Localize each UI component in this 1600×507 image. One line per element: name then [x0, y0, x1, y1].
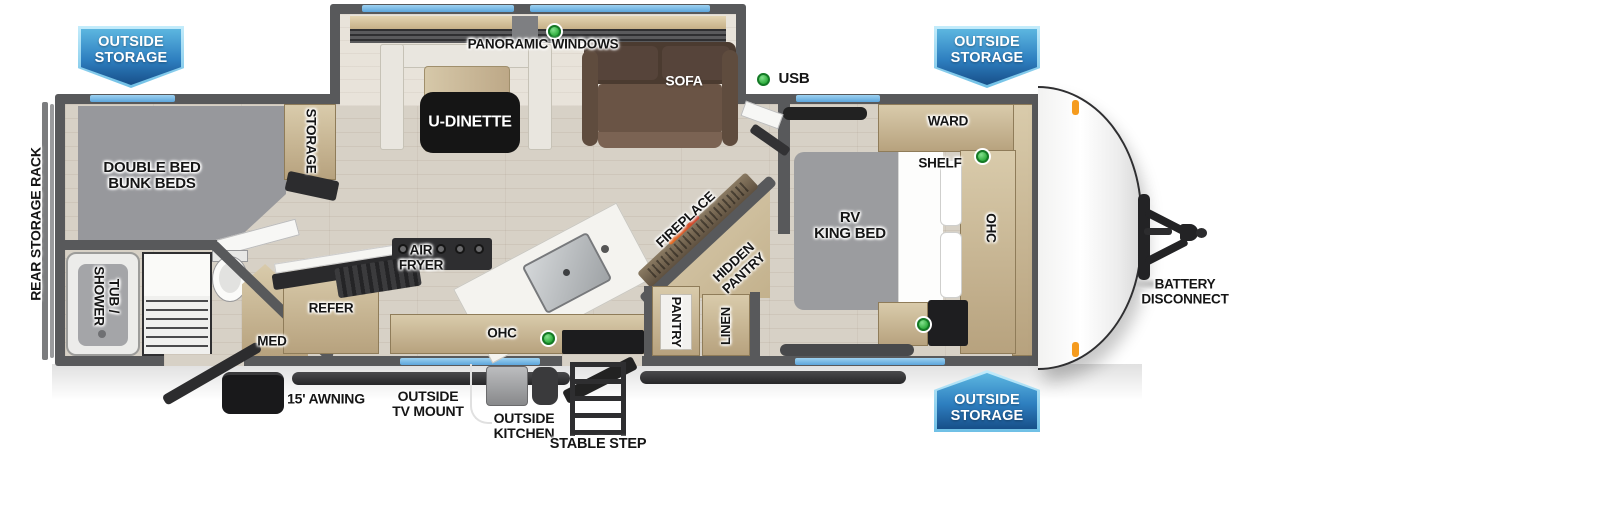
- awning-bar-right: [640, 371, 906, 384]
- bedroom-bench-bar: [780, 344, 914, 356]
- outside-storage-badge-bottom-right: OUTSIDE STORAGE: [934, 370, 1040, 432]
- air-fryer-label: AIR FRYER: [399, 243, 443, 272]
- med-label: MED: [257, 335, 286, 350]
- burner-4: [455, 244, 465, 254]
- badge-fill: OUTSIDE STORAGE: [937, 29, 1037, 85]
- dinette-bench-left: [380, 44, 404, 150]
- ward-label: WARD: [928, 115, 968, 130]
- storage-label: STORAGE: [303, 108, 318, 173]
- outside-kitchen-tank: [532, 367, 558, 405]
- pantry-wall-stub: [644, 286, 652, 356]
- faucet: [601, 245, 609, 253]
- bedroom-window-bottom: [795, 358, 945, 365]
- linen-right-wall: [750, 292, 760, 356]
- outside-tv-mount-label: OUTSIDE TV MOUNT: [392, 389, 464, 419]
- tub-drain: [98, 330, 106, 338]
- badge-label: OUTSIDE STORAGE: [951, 34, 1024, 80]
- tub-shower-label: TUB / SHOWER: [91, 266, 120, 326]
- usb-legend-label: USB: [778, 71, 809, 87]
- marker-light-bottom: [1072, 342, 1079, 357]
- usb-dot-kitchen: [542, 332, 555, 345]
- hitch-crossbar: [1138, 194, 1150, 280]
- bedroom-dark-cabinet: [928, 300, 968, 346]
- king-bed-sheet: [898, 152, 943, 310]
- bunk-bath-wall: [65, 240, 217, 250]
- ohc-bedroom-label: OHC: [983, 213, 998, 242]
- badge-label: OUTSIDE STORAGE: [951, 378, 1024, 424]
- outside-storage-badge-top-left: OUTSIDE STORAGE: [78, 26, 184, 88]
- rv-floorplan: OUTSIDE STORAGE OUTSIDE STORAGE OUTSIDE …: [0, 0, 1600, 507]
- sofa-front: [598, 132, 722, 148]
- slide-window-left: [362, 5, 514, 12]
- front-cap: [1038, 86, 1142, 370]
- outside-storage-badge-top-right: OUTSIDE STORAGE: [934, 26, 1040, 88]
- awning-bar-left: [292, 372, 570, 385]
- linen-label: LINEN: [719, 307, 733, 345]
- rear-rack-bar-inner: [50, 104, 54, 358]
- badge-fill: OUTSIDE STORAGE: [937, 373, 1037, 429]
- pillow-bottom: [940, 232, 962, 298]
- u-dinette-label: U-DINETTE: [428, 113, 512, 130]
- usb-dot-shelf: [976, 150, 989, 163]
- bedroom-window-top: [796, 95, 880, 102]
- hitch-arm-bottom: [1144, 238, 1189, 266]
- hitch-mid-bar: [1144, 228, 1172, 235]
- slideout-valance: [350, 16, 726, 30]
- sofa-label: SOFA: [665, 73, 702, 88]
- usb-dot-bed: [917, 318, 930, 331]
- bedroom-ohc-cabinet: [960, 150, 1016, 354]
- badge-fill: OUTSIDE STORAGE: [81, 29, 181, 85]
- bedroom-tv: [783, 107, 867, 120]
- awning-label: 15' AWNING: [287, 391, 365, 406]
- bunkroom-window: [90, 95, 175, 102]
- dinette-bench-right: [528, 44, 552, 150]
- sink-drain: [563, 269, 570, 276]
- rear-storage-rack-label: REAR STORAGE RACK: [28, 147, 43, 300]
- stable-step-label: STABLE STEP: [550, 437, 647, 453]
- battery-disconnect-label: BATTERY DISCONNECT: [1141, 277, 1228, 306]
- usb-dot-legend: [757, 73, 770, 86]
- rear-step-box: [222, 372, 284, 414]
- badge-label: OUTSIDE STORAGE: [95, 34, 168, 80]
- shower-door-slats: [146, 300, 208, 352]
- refer-label: REFER: [309, 302, 354, 317]
- ohc-kitchen-label: OHC: [487, 327, 516, 342]
- slide-window-right: [530, 5, 710, 12]
- outside-kitchen-box: [486, 366, 528, 406]
- stable-step-ladder: [570, 362, 626, 436]
- outside-kitchen-label: OUTSIDE KITCHEN: [494, 411, 555, 441]
- marker-light-top: [1072, 100, 1079, 115]
- double-bed-bunk-beds-label: DOUBLE BED BUNK BEDS: [103, 160, 200, 192]
- entry-landing: [562, 330, 644, 354]
- burner-5: [474, 244, 484, 254]
- sofa-arm-right: [722, 50, 738, 146]
- pantry-label: PANTRY: [669, 297, 683, 348]
- sofa-arm-left: [582, 50, 598, 146]
- panoramic-windows-label: PANORAMIC WINDOWS: [468, 38, 619, 53]
- sofa-seat: [598, 84, 722, 134]
- rv-king-bed-label: RV KING BED: [814, 210, 886, 242]
- shelf-label: SHELF: [918, 157, 961, 172]
- hitch-coupler-tip: [1196, 228, 1207, 238]
